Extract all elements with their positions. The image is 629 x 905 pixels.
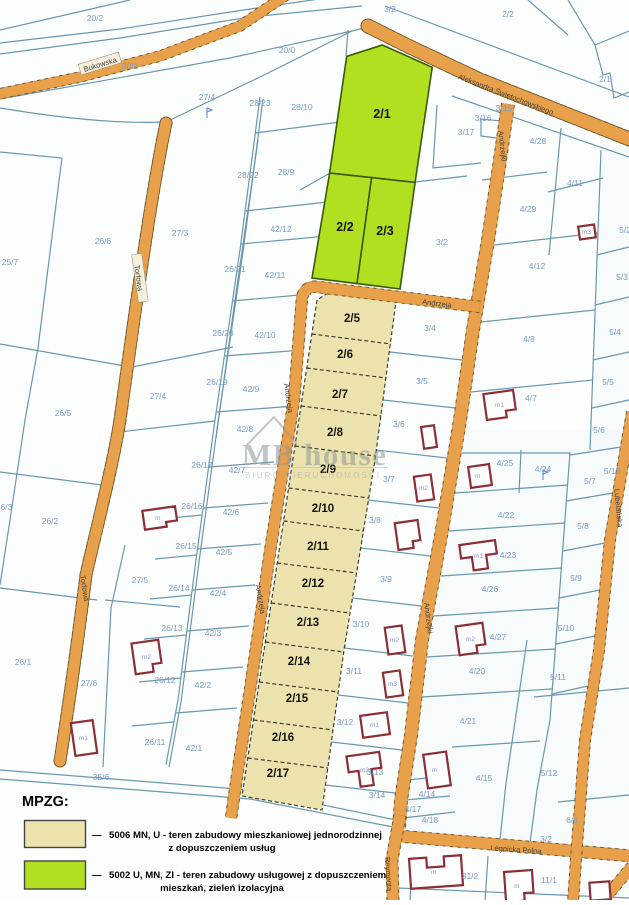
svg-text:27/3: 27/3 [172, 228, 189, 238]
svg-text:42/6: 42/6 [223, 507, 240, 517]
svg-text:20/2: 20/2 [87, 13, 104, 23]
svg-text:5/8: 5/8 [577, 521, 589, 531]
svg-text:27/5: 27/5 [132, 575, 149, 585]
svg-text:3/2: 3/2 [436, 237, 448, 247]
svg-text:—: — [92, 830, 102, 841]
svg-text:20/1: 20/1 [122, 61, 139, 71]
svg-text:4/7: 4/7 [525, 393, 537, 403]
svg-text:4/28: 4/28 [530, 136, 547, 146]
svg-text:5/2: 5/2 [619, 225, 629, 235]
svg-text:3/8: 3/8 [369, 515, 381, 525]
svg-text:3/7: 3/7 [383, 474, 395, 484]
svg-text:27/4: 27/4 [199, 92, 216, 102]
svg-text:42/8: 42/8 [237, 424, 254, 434]
svg-text:25/7: 25/7 [2, 257, 19, 267]
svg-text:3/2: 3/2 [540, 834, 552, 844]
svg-text:m2: m2 [390, 637, 399, 644]
svg-text:5/13: 5/13 [604, 466, 621, 476]
svg-text:m: m [514, 883, 519, 890]
svg-text:3/12: 3/12 [337, 717, 354, 727]
svg-text:26/6: 26/6 [95, 236, 112, 246]
svg-text:26/13: 26/13 [161, 623, 183, 633]
svg-text:4/18: 4/18 [422, 815, 439, 825]
svg-text:42/3: 42/3 [205, 628, 222, 638]
svg-text:m3: m3 [582, 229, 591, 236]
svg-text:27/4: 27/4 [150, 391, 167, 401]
svg-text:m: m [475, 473, 480, 480]
svg-text:5/5: 5/5 [602, 377, 614, 387]
svg-text:4/14: 4/14 [419, 789, 436, 799]
svg-text:28/9: 28/9 [278, 167, 295, 177]
svg-text:27/6: 27/6 [81, 678, 98, 688]
svg-text:5/6: 5/6 [593, 425, 605, 435]
svg-text:42/4: 42/4 [210, 588, 227, 598]
svg-text:4/12: 4/12 [529, 261, 546, 271]
svg-text:26/16: 26/16 [181, 501, 203, 511]
svg-text:3/13: 3/13 [367, 767, 384, 777]
svg-text:42/5: 42/5 [216, 547, 233, 557]
svg-text:3/6: 3/6 [393, 419, 405, 429]
svg-text:42/2: 42/2 [195, 680, 212, 690]
svg-text:42/10: 42/10 [254, 330, 276, 340]
svg-text:2/15: 2/15 [286, 693, 309, 705]
svg-text:20/0: 20/0 [279, 45, 296, 55]
svg-text:35/6: 35/6 [93, 772, 110, 782]
svg-text:4/22: 4/22 [498, 510, 515, 520]
svg-text:2/1: 2/1 [599, 74, 611, 84]
svg-text:26/12: 26/12 [154, 675, 176, 685]
svg-text:11/1: 11/1 [541, 875, 557, 885]
svg-text:2/16: 2/16 [272, 732, 294, 744]
svg-text:3/5: 3/5 [416, 376, 428, 386]
svg-text:m3: m3 [388, 681, 397, 688]
svg-text:4/26: 4/26 [482, 584, 499, 594]
svg-text:6/8: 6/8 [566, 815, 578, 825]
svg-text:m2: m2 [466, 636, 475, 643]
svg-text:4/20: 4/20 [469, 666, 486, 676]
svg-text:3/9: 3/9 [380, 574, 392, 584]
svg-text:2/1: 2/1 [373, 107, 390, 121]
svg-text:28/10: 28/10 [291, 102, 313, 112]
svg-text:2/10: 2/10 [312, 503, 334, 515]
svg-text:2/3: 2/3 [376, 224, 393, 238]
svg-text:3/2: 3/2 [384, 4, 396, 14]
svg-text:2/12: 2/12 [302, 578, 324, 590]
svg-text:5/7: 5/7 [584, 476, 596, 486]
svg-text:4/21: 4/21 [460, 716, 477, 726]
svg-text:5/4: 5/4 [609, 327, 621, 337]
svg-text:m2: m2 [419, 485, 428, 492]
svg-text:2/13: 2/13 [297, 617, 319, 629]
svg-text:26/2: 26/2 [42, 516, 59, 526]
svg-text:5/9: 5/9 [570, 573, 582, 583]
svg-text:m: m [155, 515, 160, 522]
svg-text:5/10: 5/10 [558, 623, 575, 633]
svg-text:26/19: 26/19 [206, 377, 228, 387]
svg-text:42/9: 42/9 [243, 384, 260, 394]
svg-text:3/4: 3/4 [424, 323, 436, 333]
svg-text:26/5: 26/5 [55, 408, 72, 418]
svg-text:m1: m1 [370, 722, 379, 729]
svg-text:26/1: 26/1 [15, 657, 32, 667]
svg-text:4/8: 4/8 [523, 334, 535, 344]
svg-text:4/15: 4/15 [476, 773, 493, 783]
svg-text:2/6: 2/6 [337, 349, 353, 361]
svg-text:42/11: 42/11 [265, 270, 286, 280]
svg-text:28/23: 28/23 [249, 98, 271, 108]
svg-text:26/14: 26/14 [168, 583, 190, 593]
svg-text:2/2: 2/2 [502, 9, 514, 19]
svg-text:4/27: 4/27 [490, 632, 507, 642]
svg-text:2/14: 2/14 [288, 656, 311, 668]
svg-text:5/12: 5/12 [541, 768, 558, 778]
svg-text:BIURO NIERUCHOMOŚCI: BIURO NIERUCHOMOŚCI [245, 471, 379, 480]
svg-text:28/22: 28/22 [237, 170, 259, 180]
svg-text:m1: m1 [474, 553, 483, 560]
svg-text:m: m [431, 869, 436, 876]
svg-text:26/15: 26/15 [175, 541, 197, 551]
svg-text:—: — [92, 870, 102, 881]
svg-text:31/2: 31/2 [462, 871, 479, 881]
svg-text:42/1: 42/1 [186, 743, 203, 753]
svg-text:5/11: 5/11 [550, 672, 566, 682]
svg-text:mieszkań, zieleń izolacyjna: mieszkań, zieleń izolacyjna [160, 883, 284, 894]
svg-text:3/17: 3/17 [458, 127, 475, 137]
svg-text:3/14: 3/14 [369, 790, 386, 800]
svg-text:26/3: 26/3 [0, 502, 13, 512]
svg-text:26/11: 26/11 [145, 737, 166, 747]
svg-text:3/15: 3/15 [496, 103, 513, 113]
svg-text:4/29: 4/29 [520, 204, 537, 214]
svg-text:m: m [432, 767, 437, 774]
svg-text:26/21: 26/21 [224, 264, 246, 274]
svg-text:z dopuszczeniem usług: z dopuszczeniem usług [168, 843, 275, 854]
svg-text:m2: m2 [142, 654, 151, 661]
svg-text:5006 MN, U - teren zabudowy mi: 5006 MN, U - teren zabudowy mieszkaniowe… [109, 830, 382, 841]
svg-text:MB house: MB house [242, 437, 386, 472]
svg-text:5/3: 5/3 [616, 272, 628, 282]
svg-text:2/11: 2/11 [307, 541, 329, 553]
svg-text:26/17: 26/17 [191, 460, 213, 470]
svg-text:2/2: 2/2 [336, 220, 353, 234]
svg-text:4/17: 4/17 [405, 804, 422, 814]
svg-text:m1: m1 [79, 735, 88, 742]
svg-text:26/20: 26/20 [212, 328, 234, 338]
svg-text:m1: m1 [495, 402, 504, 409]
svg-text:4/25: 4/25 [497, 458, 514, 468]
svg-text:3/16: 3/16 [475, 113, 492, 123]
svg-text:2/5: 2/5 [344, 313, 361, 325]
svg-text:2/7: 2/7 [332, 389, 348, 401]
svg-text:4/11: 4/11 [567, 178, 583, 188]
svg-text:42/12: 42/12 [270, 224, 292, 234]
svg-text:3/10: 3/10 [353, 619, 370, 629]
svg-text:2/17: 2/17 [267, 768, 289, 780]
svg-text:4/23: 4/23 [500, 550, 517, 560]
svg-text:5002 U, MN, ZI - teren zabudow: 5002 U, MN, ZI - teren zabudowy usługowe… [109, 870, 386, 881]
svg-text:3/11: 3/11 [346, 666, 362, 676]
svg-text:MPZG:: MPZG: [22, 794, 69, 810]
